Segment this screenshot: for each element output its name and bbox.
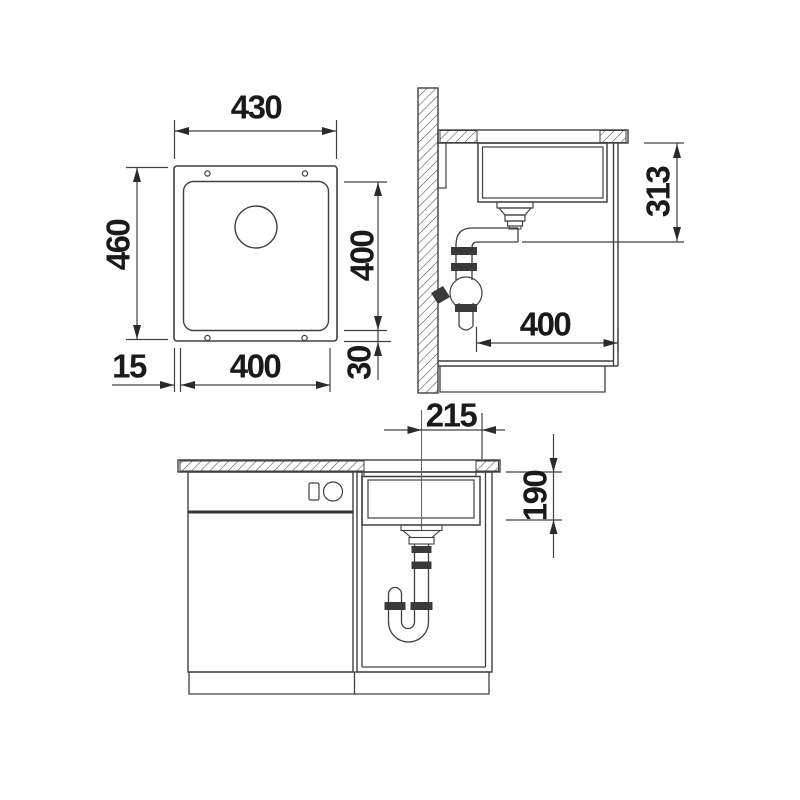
countertop-hatch-left xyxy=(440,131,477,143)
bowl-section-inner xyxy=(483,147,604,198)
label-bowl-height: 190 xyxy=(517,471,554,522)
front-view: 215 190 xyxy=(178,397,562,695)
control-button-square xyxy=(309,483,319,500)
label-bowl-width: 400 xyxy=(230,348,281,385)
label-bottom-rim: 30 xyxy=(341,346,378,380)
sink-outer-outline xyxy=(174,166,337,341)
fixing-holes xyxy=(205,171,308,341)
label-left-rim: 15 xyxy=(112,348,147,385)
plan-view: 430 460 400 30 15 400 xyxy=(100,89,392,393)
wall-batten xyxy=(438,143,446,188)
bowl-section-outer xyxy=(478,143,607,202)
strainer-side xyxy=(497,202,533,226)
technical-drawing-canvas: 430 460 400 30 15 400 xyxy=(0,0,800,800)
sink-dimension-diagram: 430 460 400 30 15 400 xyxy=(0,0,800,800)
sink-bowl-outline xyxy=(184,182,329,331)
label-drain-offset: 215 xyxy=(426,397,478,434)
label-outer-depth: 460 xyxy=(100,220,137,271)
label-outer-width: 430 xyxy=(231,89,282,126)
countertop-front-hatch-left xyxy=(180,461,364,471)
side-view: 313 400 xyxy=(418,88,684,393)
plinth xyxy=(188,672,492,694)
label-install-depth: 313 xyxy=(640,166,677,218)
sink-cabinet xyxy=(357,472,492,672)
left-cabinet xyxy=(188,472,353,672)
dim-outer-width xyxy=(175,120,337,159)
countertop-hatch-right xyxy=(600,131,626,143)
wall-section xyxy=(418,88,438,393)
trap-side xyxy=(431,226,521,330)
countertop-front-hatch-right xyxy=(476,461,499,471)
label-cabinet-depth: 400 xyxy=(520,306,571,343)
drain-hole xyxy=(235,206,277,248)
control-knob-circle xyxy=(324,482,343,501)
label-bowl-depth: 400 xyxy=(344,231,381,282)
trap-front xyxy=(385,525,443,642)
